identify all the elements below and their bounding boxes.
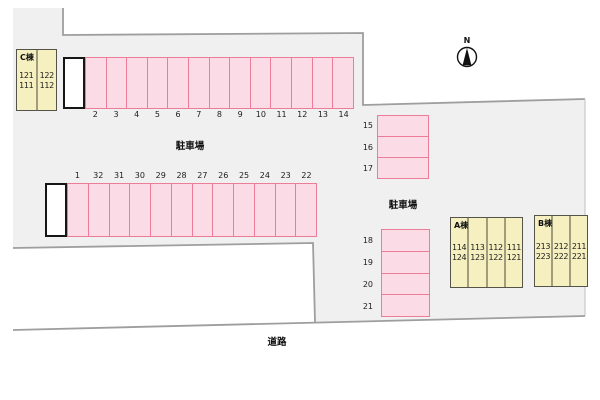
room-number: 114 (452, 243, 466, 252)
parking-row-middle-labels: 13231302928272625242322 (67, 171, 317, 181)
building-b-label: B棟 (538, 218, 552, 229)
parking-space-number: 6 (168, 110, 189, 120)
parking-space-number: 21 (355, 302, 373, 311)
room-number: 112 (40, 81, 54, 90)
building-a-label: A棟 (454, 220, 468, 231)
parking-space-number: 12 (292, 110, 313, 120)
parking-space (126, 58, 147, 108)
parking-space (192, 184, 213, 236)
room-number: 221 (572, 252, 586, 261)
parking-space (295, 184, 316, 236)
parking-space-number: 7 (188, 110, 209, 120)
parking-space (171, 184, 192, 236)
north-label: N (459, 36, 475, 45)
neighbor-plot-cutout (13, 243, 315, 330)
parking-space-number: 23 (275, 171, 296, 181)
parking-space-number: 5 (147, 110, 168, 120)
room-number: 212 (554, 242, 568, 251)
building-unit-column: 122112 (36, 50, 57, 110)
parking-space (147, 58, 168, 108)
parking-space-number: 10 (251, 110, 272, 120)
parking-space (233, 184, 254, 236)
building-unit-column: 113123 (467, 218, 485, 287)
parking-space (382, 294, 429, 316)
room-number: 112 (488, 243, 502, 252)
building-c-label: C棟 (20, 52, 34, 63)
parking-space (129, 184, 150, 236)
room-number: 111 (19, 81, 33, 90)
parking-space-number: 30 (129, 171, 150, 181)
reserved-stall-middle (45, 183, 67, 237)
building-b: B棟 213223212222211221 (534, 215, 588, 287)
parking-space (167, 58, 188, 108)
room-number: 113 (470, 243, 484, 252)
building-unit-column: 112122 (486, 218, 504, 287)
parking-space-number: 27 (192, 171, 213, 181)
parking-space (86, 58, 106, 108)
parking-space-number: 8 (209, 110, 230, 120)
parking-space (68, 184, 88, 236)
parking-space-number: 22 (296, 171, 317, 181)
parking-space-number: 11 (271, 110, 292, 120)
building-a: A棟 114124113123112122111121 (450, 217, 523, 288)
parking-space (378, 157, 428, 178)
room-number: 124 (452, 253, 466, 262)
site-plan: 234567891011121314 132313029282726252423… (0, 0, 600, 400)
parking-space-number: 31 (109, 171, 130, 181)
parking-space-number: 2 (85, 110, 106, 120)
parking-row-middle (67, 183, 317, 237)
north-compass-icon (458, 48, 477, 67)
room-number: 223 (536, 252, 550, 261)
parking-space (378, 116, 428, 136)
room-number: 222 (554, 252, 568, 261)
building-unit-column: 211221 (569, 216, 587, 286)
parking-space-number: 18 (355, 236, 373, 245)
parking-space (270, 58, 291, 108)
parking-space (291, 58, 312, 108)
parking-area-label-top: 駐車場 (172, 138, 208, 152)
parking-space (188, 58, 209, 108)
room-number: 122 (40, 71, 54, 80)
parking-area-label-right: 駐車場 (385, 197, 421, 211)
building-unit-column: 111121 (504, 218, 522, 287)
parking-space-number: 17 (355, 164, 373, 173)
parking-stack-lower (381, 229, 430, 317)
parking-space (382, 230, 429, 251)
room-number: 121 (507, 253, 521, 262)
parking-space (378, 136, 428, 157)
parking-space (382, 251, 429, 273)
room-number: 213 (536, 242, 550, 251)
parking-space-number: 14 (333, 110, 354, 120)
parking-stack-upper (377, 115, 429, 179)
room-number: 123 (470, 253, 484, 262)
parking-space (106, 58, 127, 108)
room-number: 121 (19, 71, 33, 80)
parking-space (382, 273, 429, 295)
parking-space (212, 184, 233, 236)
parking-space-number: 3 (106, 110, 127, 120)
parking-space (312, 58, 333, 108)
parking-space-number: 29 (150, 171, 171, 181)
parking-space-number: 19 (355, 258, 373, 267)
parking-space (209, 58, 230, 108)
parking-space (254, 184, 275, 236)
parking-space-number: 20 (355, 280, 373, 289)
parking-space (250, 58, 271, 108)
parking-space-number: 9 (230, 110, 251, 120)
reserved-stall-top (63, 57, 85, 109)
parking-space (229, 58, 250, 108)
parking-row-top-labels: 234567891011121314 (85, 110, 354, 120)
parking-space-number: 26 (213, 171, 234, 181)
parking-space (332, 58, 353, 108)
parking-row-top (85, 57, 354, 109)
parking-space (109, 184, 130, 236)
parking-space-number: 24 (254, 171, 275, 181)
parking-space-number: 25 (234, 171, 255, 181)
road-label: 道路 (261, 334, 293, 348)
parking-space (275, 184, 296, 236)
building-unit-column: 212222 (551, 216, 569, 286)
room-number: 111 (507, 243, 521, 252)
parking-space-number: 1 (67, 171, 88, 181)
building-c: C棟 121111122112 (16, 49, 57, 111)
room-number: 122 (488, 253, 502, 262)
parking-space-number: 13 (313, 110, 334, 120)
parking-space (150, 184, 171, 236)
parking-space-number: 15 (355, 121, 373, 130)
room-number: 211 (572, 242, 586, 251)
parking-space-number: 16 (355, 143, 373, 152)
parking-space-number: 32 (88, 171, 109, 181)
parking-space (88, 184, 109, 236)
parking-space-number: 28 (171, 171, 192, 181)
parking-space-number: 4 (126, 110, 147, 120)
